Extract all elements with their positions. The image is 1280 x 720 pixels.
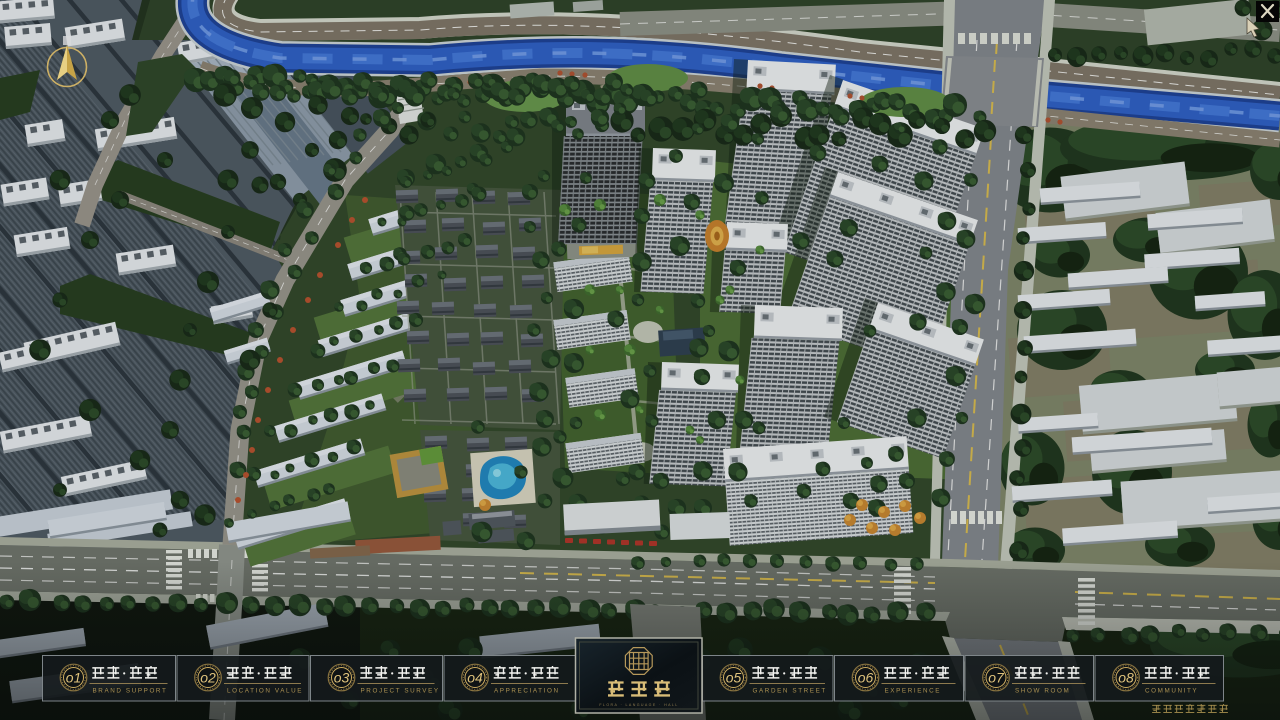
svg-text:APPRECIATION: APPRECIATION xyxy=(494,688,560,695)
svg-text:o6: o6 xyxy=(858,670,874,686)
svg-text:FLORA · LANGUAGE · HALL: FLORA · LANGUAGE · HALL xyxy=(599,703,678,707)
svg-text:o2: o2 xyxy=(200,670,216,686)
svg-text:COMMUNITY: COMMUNITY xyxy=(1145,688,1198,695)
svg-text:o5: o5 xyxy=(726,670,742,686)
svg-text:o4: o4 xyxy=(467,670,483,686)
svg-text:BRAND SUPPORT: BRAND SUPPORT xyxy=(93,688,168,695)
svg-text:o8: o8 xyxy=(1118,670,1134,686)
svg-text:o7: o7 xyxy=(988,670,1005,686)
svg-text:GARDEN STREET: GARDEN STREET xyxy=(753,688,827,695)
svg-text:o1: o1 xyxy=(66,670,82,686)
svg-text:PROJECT SURVEY: PROJECT SURVEY xyxy=(361,688,440,695)
svg-text:SHOW ROOM: SHOW ROOM xyxy=(1015,688,1070,695)
svg-text:EXPERIENCE: EXPERIENCE xyxy=(885,688,942,695)
svg-text:o3: o3 xyxy=(334,670,350,686)
svg-text:LOCATION VALUE: LOCATION VALUE xyxy=(227,688,303,695)
